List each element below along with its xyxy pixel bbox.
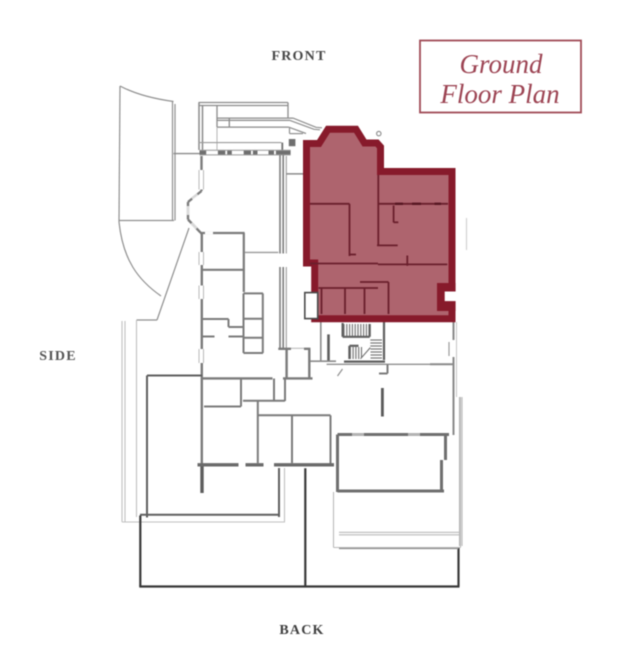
- svg-text:BACK: BACK: [279, 623, 324, 638]
- svg-text:Ground: Ground: [459, 49, 543, 79]
- svg-text:SIDE: SIDE: [39, 349, 76, 364]
- svg-text:FRONT: FRONT: [272, 49, 327, 64]
- svg-text:Floor Plan: Floor Plan: [439, 79, 559, 109]
